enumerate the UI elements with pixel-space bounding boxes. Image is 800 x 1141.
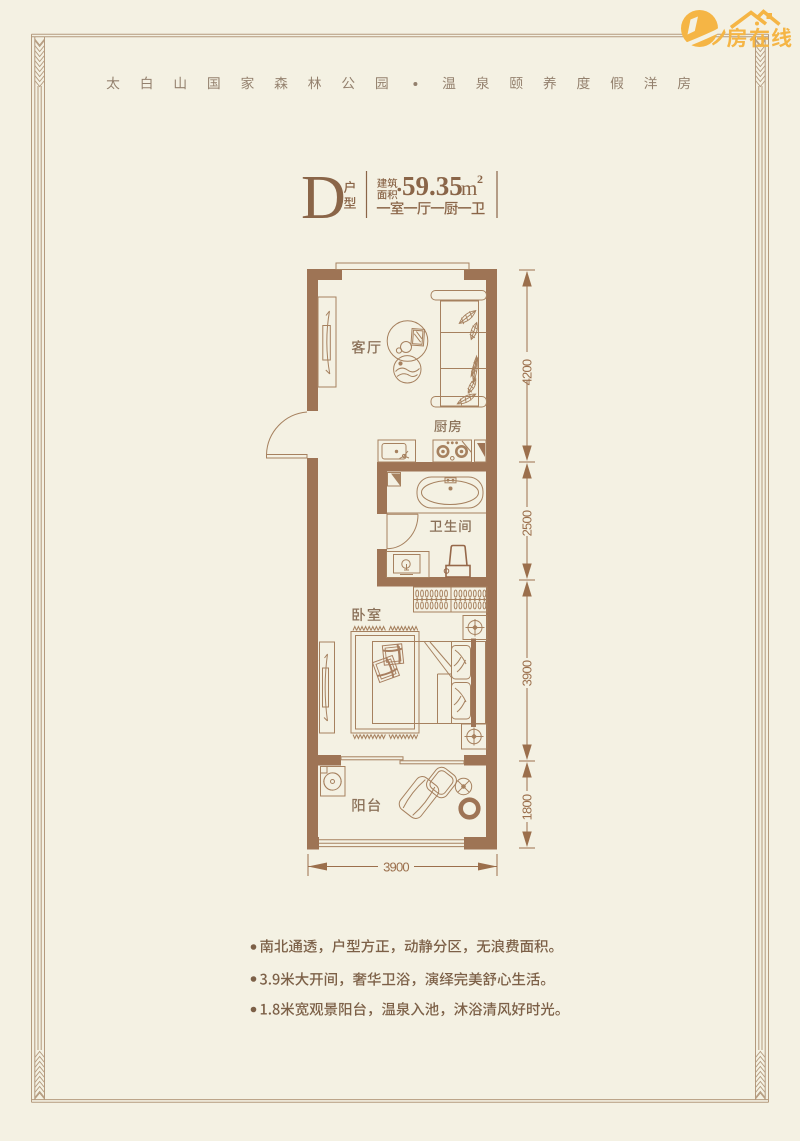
svg-text:3900: 3900	[383, 860, 409, 875]
svg-text:2500: 2500	[520, 510, 535, 536]
svg-text:1800: 1800	[520, 794, 535, 820]
svg-text:3900: 3900	[520, 660, 535, 686]
svg-text:D: D	[301, 164, 346, 232]
svg-text:m: m	[461, 176, 477, 200]
svg-text:59.35: 59.35	[402, 171, 463, 201]
svg-text:2: 2	[477, 172, 483, 186]
svg-text:4200: 4200	[520, 359, 535, 385]
